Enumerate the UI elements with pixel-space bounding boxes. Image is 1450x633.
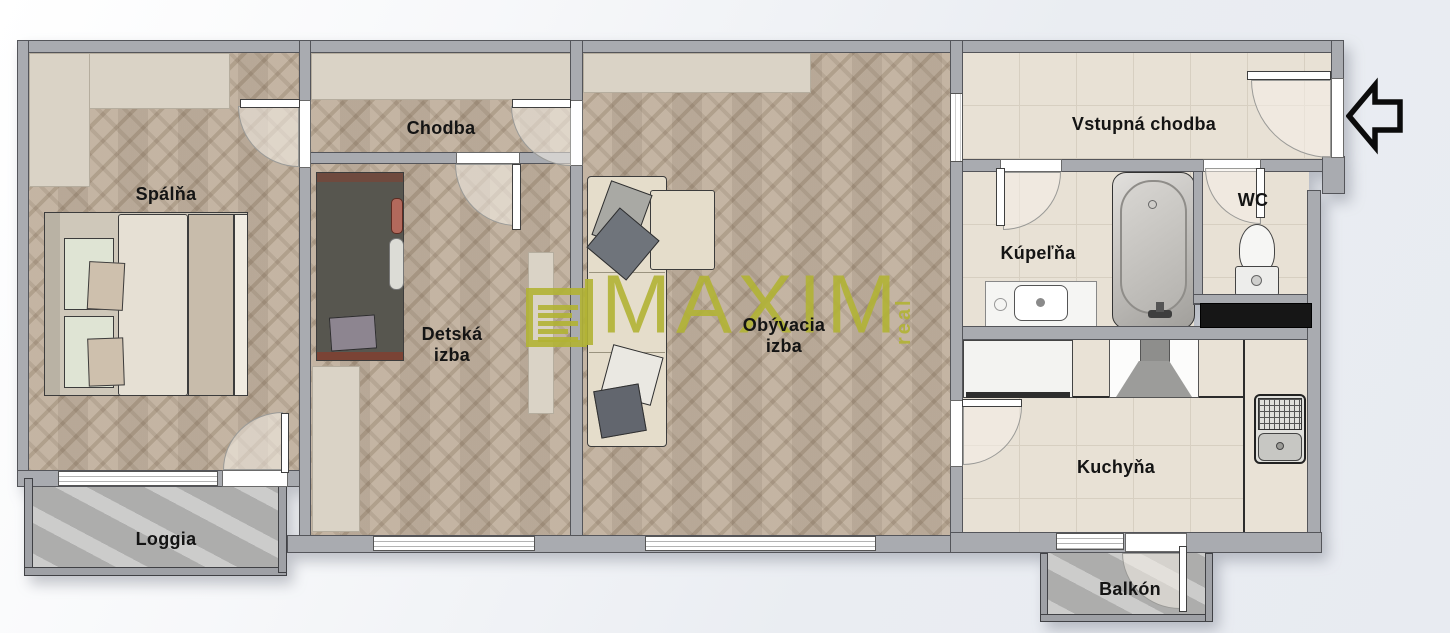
room-label-loggia: Loggia: [136, 529, 197, 550]
single-bed-red-cushion: [391, 198, 403, 234]
wall-balcony-bottom: [1040, 614, 1213, 622]
fridge: [963, 340, 1073, 398]
room-label-kupelna: Kúpeľňa: [1000, 243, 1075, 264]
kids-wardrobe: [312, 366, 360, 532]
apartment-plan: MAXIM real Spálňa Chodba Detská izba Obý…: [0, 0, 1450, 633]
door-opening-kitchen: [950, 400, 963, 467]
watermark-logo-line: [538, 305, 578, 310]
room-label-kuchyna: Kuchyňa: [1077, 457, 1155, 478]
wall-balcony-right: [1205, 553, 1213, 622]
bathtub-faucet-handle: [1156, 302, 1164, 312]
wall-exterior-right-top: [1331, 40, 1344, 80]
bed-cushion: [87, 261, 125, 311]
watermark-tagline: real: [893, 279, 916, 345]
door-opening-bedroom: [299, 100, 311, 168]
sink-faucet-dot: [1036, 298, 1045, 307]
entrance-door-opening: [1331, 78, 1344, 158]
floor-loggia: [32, 478, 284, 570]
wall-balcony-left: [1040, 553, 1048, 622]
door-leaf-living-room: [512, 99, 571, 108]
door-leaf-bathroom: [996, 168, 1005, 226]
door-opening-kids-room: [456, 152, 520, 164]
watermark-logo-line: [538, 329, 568, 334]
door-leaf-entrance: [1247, 71, 1331, 80]
single-bed-frame-bottom: [317, 352, 403, 360]
bed-duvet-dark: [188, 214, 234, 396]
window-kids-room: [373, 536, 535, 551]
door-leaf-kids-room: [512, 164, 521, 230]
vanity-drain-circle: [994, 298, 1007, 311]
bathtub-drain: [1148, 200, 1157, 209]
single-bed-frame-top: [317, 173, 403, 182]
bed-blanket-edge: [234, 214, 248, 396]
wall-exterior-right-step: [1322, 156, 1345, 194]
loggia-door-opening: [222, 470, 288, 487]
wall-bath-wc-divider: [1193, 171, 1203, 305]
wall-exterior-right-lower: [1307, 190, 1321, 553]
black-counter: [1200, 303, 1312, 328]
watermark-logo-line: [538, 313, 572, 318]
door-leaf-kitchen: [962, 399, 1022, 407]
bed-duvet: [118, 214, 188, 396]
room-label-spalna: Spálňa: [136, 184, 197, 205]
watermark-logo-line: [538, 337, 578, 342]
room-label-obyvacia-izba: Obývacia izba: [743, 315, 825, 357]
extractor-duct: [1140, 338, 1170, 362]
bedroom-wardrobe-left: [29, 53, 90, 187]
room-label-wc: WC: [1238, 190, 1269, 211]
wall-loggia-bottom: [24, 567, 287, 576]
watermark-logo-line: [538, 321, 578, 326]
living-room-wardrobe-top: [583, 53, 811, 93]
hallway-wardrobe-top: [311, 53, 571, 100]
wall-loggia-right: [278, 478, 287, 573]
room-label-vstupna-chodba: Vstupná chodba: [1072, 114, 1216, 135]
wall-exterior-left: [17, 40, 29, 480]
single-bed-pillow: [329, 314, 377, 351]
bed-headboard: [45, 213, 60, 395]
room-label-balkon: Balkón: [1099, 579, 1161, 600]
room-label-chodba: Chodba: [407, 118, 476, 139]
floorplan-canvas: MAXIM real Spálňa Chodba Detská izba Obý…: [0, 0, 1450, 633]
door-leaf-balcony: [1179, 546, 1187, 612]
door-opening-bathroom: [1000, 159, 1062, 172]
window-living-room: [645, 536, 876, 551]
wall-kitchen-top: [962, 326, 1321, 340]
fridge-handle-strip: [966, 392, 1070, 398]
sofa-pillow-dark: [593, 383, 647, 438]
watermark-logo-spine: [585, 279, 593, 345]
door-leaf-loggia: [281, 413, 289, 473]
entrance-arrow-icon: [1346, 76, 1404, 158]
wall-loggia-left: [24, 478, 33, 575]
door-leaf-bedroom: [240, 99, 300, 108]
kitchen-sink-drainer: [1258, 398, 1302, 430]
window-bedroom-loggia: [58, 471, 218, 486]
room-label-detska-izba: Detská izba: [422, 324, 483, 366]
single-bed-blanket: [389, 238, 404, 290]
bed-cushion: [87, 337, 125, 386]
door-opening-living-room: [570, 100, 583, 166]
balcony-door-opening: [1125, 533, 1187, 552]
toilet-flush-button: [1251, 275, 1262, 286]
wall-exterior-top: [17, 40, 1344, 53]
wall-hallway-bottom: [310, 152, 572, 164]
passage-living-entrance: [950, 93, 963, 162]
kitchen-sink-drain-dot: [1276, 442, 1284, 450]
window-kitchen-balcony: [1056, 533, 1124, 550]
